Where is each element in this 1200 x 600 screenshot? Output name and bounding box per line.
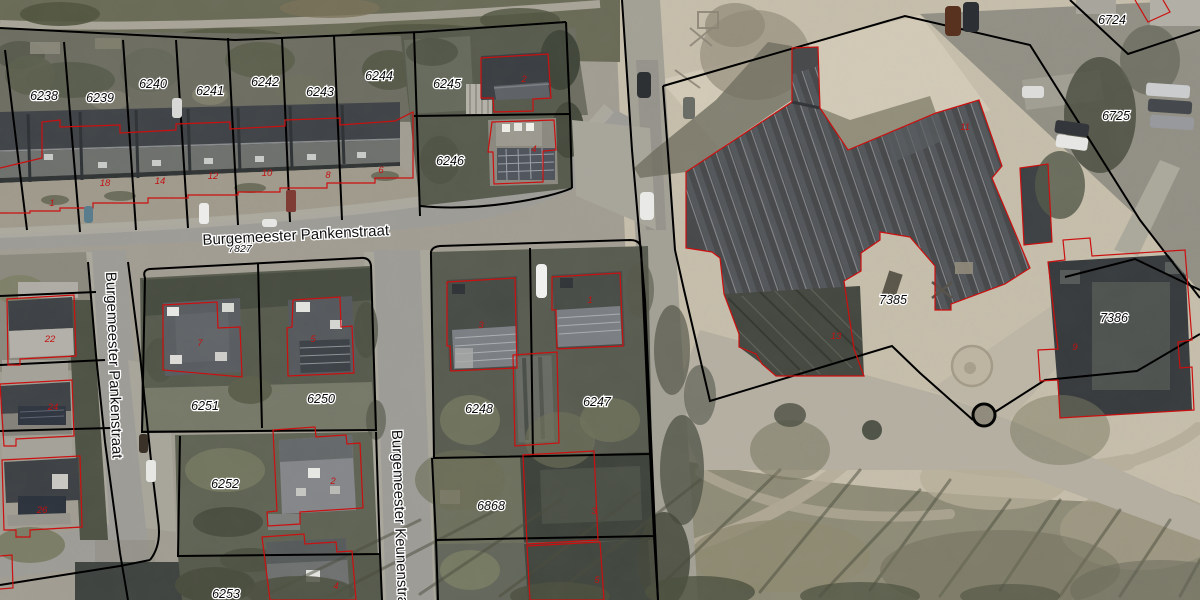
svg-text:1: 1 bbox=[587, 295, 592, 306]
svg-text:11: 11 bbox=[960, 122, 970, 133]
svg-text:14: 14 bbox=[155, 176, 166, 187]
svg-text:6248: 6248 bbox=[465, 402, 493, 416]
svg-text:5: 5 bbox=[594, 575, 600, 586]
svg-text:6243: 6243 bbox=[306, 85, 334, 99]
svg-text:6245: 6245 bbox=[433, 77, 461, 91]
svg-text:10: 10 bbox=[262, 168, 273, 179]
svg-text:4: 4 bbox=[333, 581, 338, 592]
svg-text:13: 13 bbox=[831, 331, 842, 342]
svg-text:6252: 6252 bbox=[211, 477, 239, 491]
svg-text:3: 3 bbox=[591, 506, 597, 517]
svg-text:5: 5 bbox=[310, 334, 316, 345]
svg-text:12: 12 bbox=[208, 171, 219, 182]
svg-text:7385: 7385 bbox=[879, 293, 907, 307]
svg-text:6242: 6242 bbox=[251, 75, 279, 89]
svg-text:6724: 6724 bbox=[1098, 13, 1126, 27]
svg-text:2: 2 bbox=[520, 74, 527, 85]
svg-text:6238: 6238 bbox=[30, 89, 58, 103]
svg-text:3: 3 bbox=[478, 320, 484, 331]
svg-text:9: 9 bbox=[1072, 342, 1078, 353]
svg-text:6250: 6250 bbox=[307, 392, 335, 406]
svg-text:6868: 6868 bbox=[477, 499, 505, 513]
svg-text:1: 1 bbox=[49, 198, 54, 209]
svg-text:26: 26 bbox=[36, 505, 48, 516]
svg-text:6246: 6246 bbox=[436, 154, 464, 168]
svg-text:8: 8 bbox=[325, 170, 331, 181]
svg-text:6241: 6241 bbox=[196, 84, 224, 98]
svg-text:6239: 6239 bbox=[86, 91, 114, 105]
svg-text:6247: 6247 bbox=[583, 395, 612, 409]
svg-text:2: 2 bbox=[329, 476, 336, 487]
svg-text:6: 6 bbox=[378, 165, 384, 176]
svg-text:4: 4 bbox=[531, 144, 536, 155]
svg-text:6251: 6251 bbox=[191, 399, 219, 413]
svg-text:6253: 6253 bbox=[212, 587, 240, 600]
svg-text:7: 7 bbox=[197, 338, 203, 349]
svg-text:18: 18 bbox=[100, 178, 111, 189]
svg-text:6240: 6240 bbox=[139, 77, 167, 91]
svg-text:24: 24 bbox=[47, 402, 59, 413]
svg-text:7386: 7386 bbox=[1100, 311, 1128, 325]
svg-text:6244: 6244 bbox=[365, 69, 393, 83]
svg-text:6725: 6725 bbox=[1102, 109, 1130, 123]
svg-text:22: 22 bbox=[44, 334, 56, 345]
